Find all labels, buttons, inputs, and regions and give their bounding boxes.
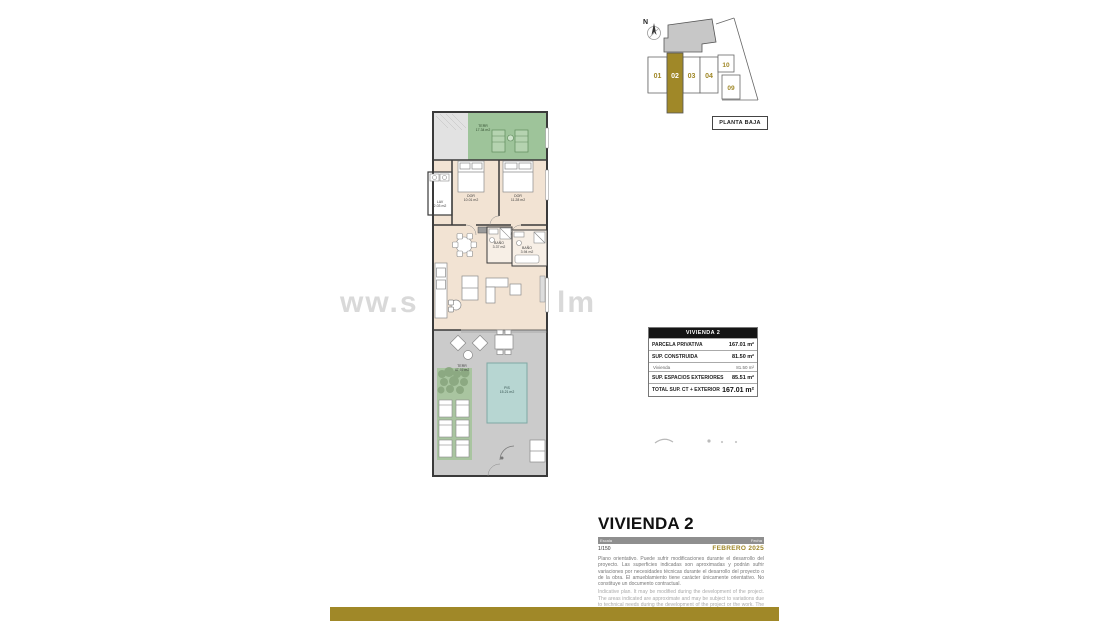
- top-terrace-zone: [468, 112, 547, 160]
- bed-right: [503, 161, 533, 192]
- unit-10-label: 10: [722, 62, 730, 69]
- north-label: N: [643, 19, 648, 26]
- room-label-terrace-top: TERR 17.34 m2: [476, 124, 491, 132]
- room-label-bath-main: BAÑO 3.94 m2: [521, 246, 534, 254]
- unit-boxes: 01 02 03 04 10 09: [648, 53, 740, 113]
- unit-03-label: 03: [688, 73, 696, 80]
- highlighted-unit-02: [667, 53, 683, 113]
- room-label-bedroom-left: DOR 10.01 m2: [464, 194, 479, 202]
- table-row: PARCELA PRIVATIVA 167.01 m²: [649, 338, 757, 350]
- date-value: FEBRERO 2025: [712, 545, 764, 552]
- date-label: Fecha: [751, 538, 762, 543]
- room-label-laundry: LAV 2.03 m2: [434, 200, 447, 208]
- footer-accent-bar: [330, 607, 779, 621]
- deck-mat: [530, 440, 545, 462]
- bed-left: [458, 161, 484, 192]
- title-block: VIVIENDA 2 Escala Fecha 1/150 FEBRERO 20…: [598, 514, 764, 621]
- closet-strip: [478, 227, 487, 233]
- page-title: VIVIENDA 2: [598, 514, 764, 534]
- floor-label: PLANTA BAJA: [719, 120, 761, 126]
- area-table-header: VIVIENDA 2: [649, 328, 757, 338]
- floor-plan: TERR 17.34 m2 DOR 10.01 m2 DOR 11.28 m2 …: [426, 108, 550, 478]
- scale-label: Escala: [600, 538, 612, 543]
- faint-logo-marks: [640, 428, 760, 468]
- unit-02-label: 02: [671, 73, 679, 80]
- unit-01-label: 01: [654, 73, 662, 80]
- room-label-terrace-bottom: TERR 47.97 m2: [455, 364, 470, 372]
- unit-04-label: 04: [705, 73, 713, 80]
- watermark-right: lm: [557, 286, 596, 320]
- room-label-bath-small: BAÑO 3.37 m2: [493, 241, 506, 249]
- scale-value: 1/150: [598, 546, 611, 552]
- disclaimer-spanish: Plano orientativo. Puede sufrir modifica…: [598, 556, 764, 587]
- table-row: SUP. ESPACIOS EXTERIORES 85.51 m²: [649, 371, 757, 383]
- unit-09-label: 09: [727, 85, 735, 92]
- entry-zone: [433, 112, 468, 160]
- room-label-bedroom-right: DOR 11.28 m2: [511, 194, 525, 202]
- area-summary-table: VIVIENDA 2 PARCELA PRIVATIVA 167.01 m² S…: [648, 327, 758, 397]
- watermark-left: ww.s: [340, 286, 419, 320]
- floor-label-box: PLANTA BAJA: [712, 116, 768, 130]
- floorplan-sheet: N 01 02: [0, 0, 1110, 626]
- table-row: TOTAL SUP. CT + EXTERIOR 167.01 m²: [649, 383, 757, 396]
- scale-date-bar: Escala Fecha: [598, 537, 764, 544]
- table-row: Vivienda 81.50 m²: [649, 362, 757, 371]
- scale-date-values: 1/150 FEBRERO 2025: [598, 545, 764, 552]
- room-label-pool: PIS 15.21 m2: [500, 386, 515, 394]
- table-row: SUP. CONSTRUIDA 81.50 m²: [649, 350, 757, 362]
- north-compass-icon: N: [643, 19, 661, 40]
